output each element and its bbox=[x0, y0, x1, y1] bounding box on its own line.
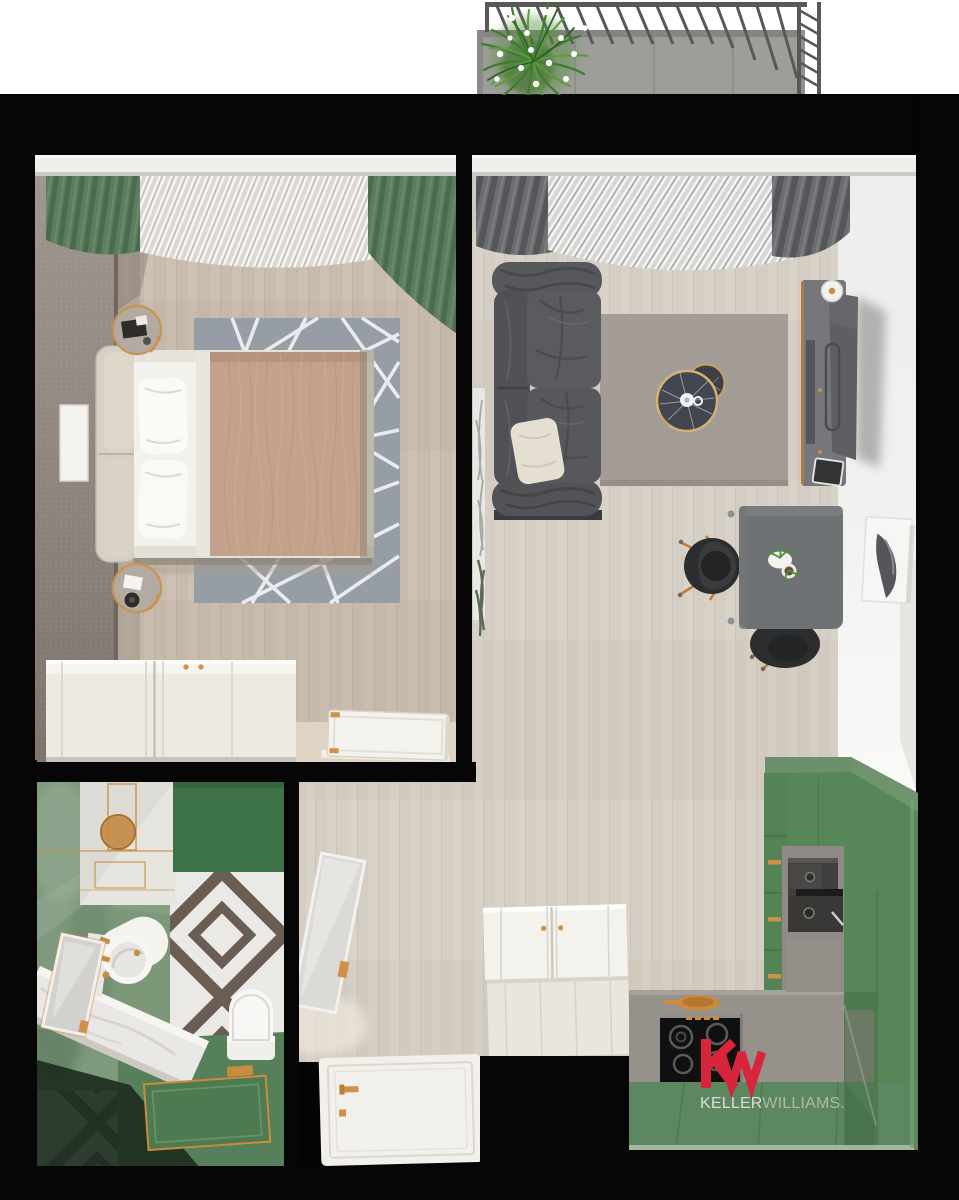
svg-text:KELLERWILLIAMS.: KELLERWILLIAMS. bbox=[700, 1095, 845, 1112]
